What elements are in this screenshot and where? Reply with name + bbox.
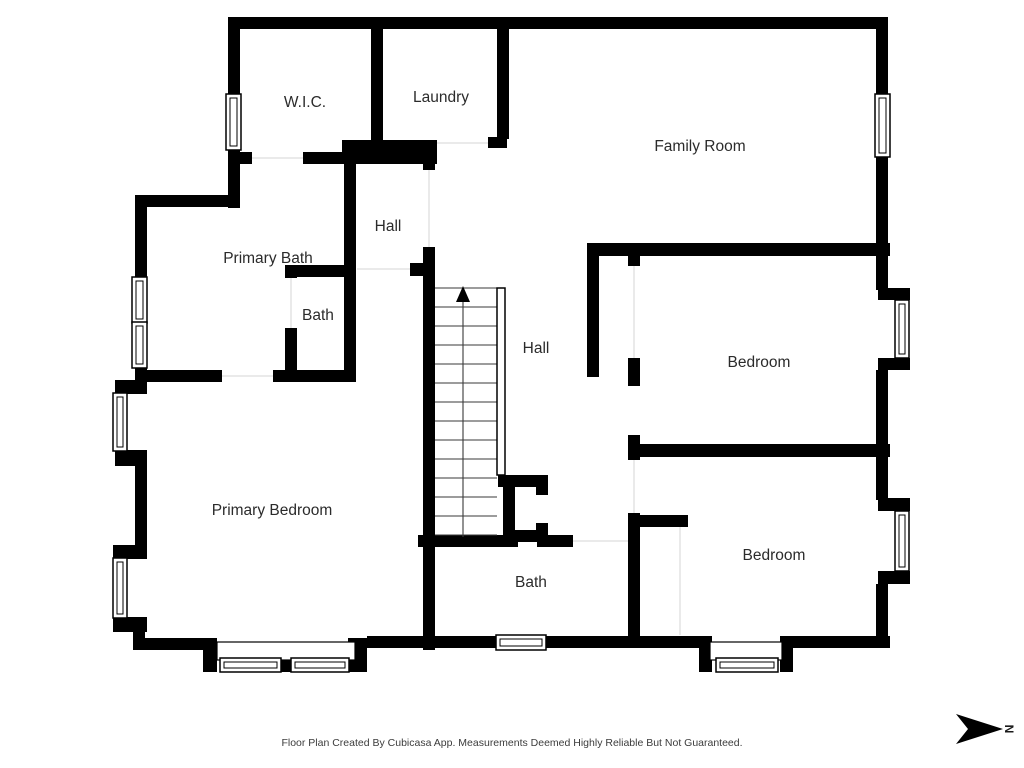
wall-segment	[423, 140, 435, 170]
room-label-bath-bottom: Bath	[515, 574, 547, 591]
footer-disclaimer: Floor Plan Created By Cubicasa App. Meas…	[281, 737, 742, 749]
wall-segment	[878, 288, 910, 300]
wall-segment	[228, 17, 888, 29]
window	[132, 277, 147, 323]
room-label-wic: W.I.C.	[284, 94, 326, 111]
window	[132, 322, 147, 368]
wall-segment	[628, 435, 640, 460]
wall-segment	[371, 29, 383, 144]
wall-segment	[876, 155, 888, 290]
wall-segment	[878, 498, 910, 511]
wall-segment	[497, 29, 509, 139]
wall-segment	[281, 659, 291, 672]
wall-segment	[133, 638, 203, 650]
window	[226, 94, 241, 150]
wall-segment	[628, 253, 640, 266]
wall-segment	[285, 328, 297, 377]
stair-railing	[497, 288, 505, 475]
wall-segment	[536, 523, 548, 542]
wall-segment	[135, 195, 237, 207]
wall-segment	[303, 152, 343, 164]
wall-segment	[115, 380, 147, 394]
wall-segment	[228, 17, 240, 97]
wall-segment	[536, 475, 548, 495]
window	[895, 300, 909, 358]
north-letter: N	[1002, 725, 1016, 734]
floor-plan: W.I.C. Laundry Family Room Hall Primary …	[0, 0, 1024, 768]
wall-segment	[342, 140, 437, 164]
wall-segment	[135, 195, 147, 280]
wall-segment	[503, 487, 515, 532]
window	[220, 658, 281, 672]
floor-plan-canvas: W.I.C. Laundry Family Room Hall Primary …	[0, 0, 1024, 768]
wall-segment	[876, 370, 888, 446]
room-label-bedroom-top: Bedroom	[728, 354, 791, 371]
wall-segment	[344, 160, 356, 382]
window	[895, 511, 909, 571]
wall-segment	[878, 358, 910, 370]
wall-segment	[878, 571, 910, 584]
wall-segment	[135, 370, 222, 382]
wall-segment	[876, 17, 888, 97]
room-label-family-room: Family Room	[654, 138, 745, 155]
wall-segment	[203, 638, 217, 672]
room-label-laundry: Laundry	[413, 89, 469, 106]
room-label-hall-upper: Hall	[375, 218, 402, 235]
window	[716, 658, 778, 672]
wall-segment	[113, 617, 147, 632]
room-label-primary-bath: Primary Bath	[223, 250, 313, 267]
window	[291, 658, 349, 672]
background	[0, 0, 1024, 768]
wall-segment	[876, 457, 888, 500]
room-label-hall-center: Hall	[523, 340, 550, 357]
wall-segment	[793, 636, 890, 648]
wall-segment	[488, 137, 507, 148]
room-label-bedroom-bottom: Bedroom	[743, 547, 806, 564]
wall-segment	[628, 358, 640, 386]
wall-segment	[135, 466, 147, 547]
wall-segment	[635, 444, 890, 457]
wall-segment	[113, 545, 147, 559]
wall-segment	[228, 152, 252, 164]
window	[496, 635, 546, 650]
room-label-primary-bedroom: Primary Bedroom	[212, 502, 333, 519]
window	[113, 393, 127, 451]
wall-segment	[587, 245, 599, 377]
window	[113, 558, 127, 618]
wall-segment	[423, 247, 435, 650]
wall-segment	[115, 450, 147, 466]
room-label-bath-small: Bath	[302, 307, 334, 324]
window	[875, 94, 890, 157]
wall-segment	[628, 513, 640, 648]
wall-segment	[637, 515, 688, 527]
